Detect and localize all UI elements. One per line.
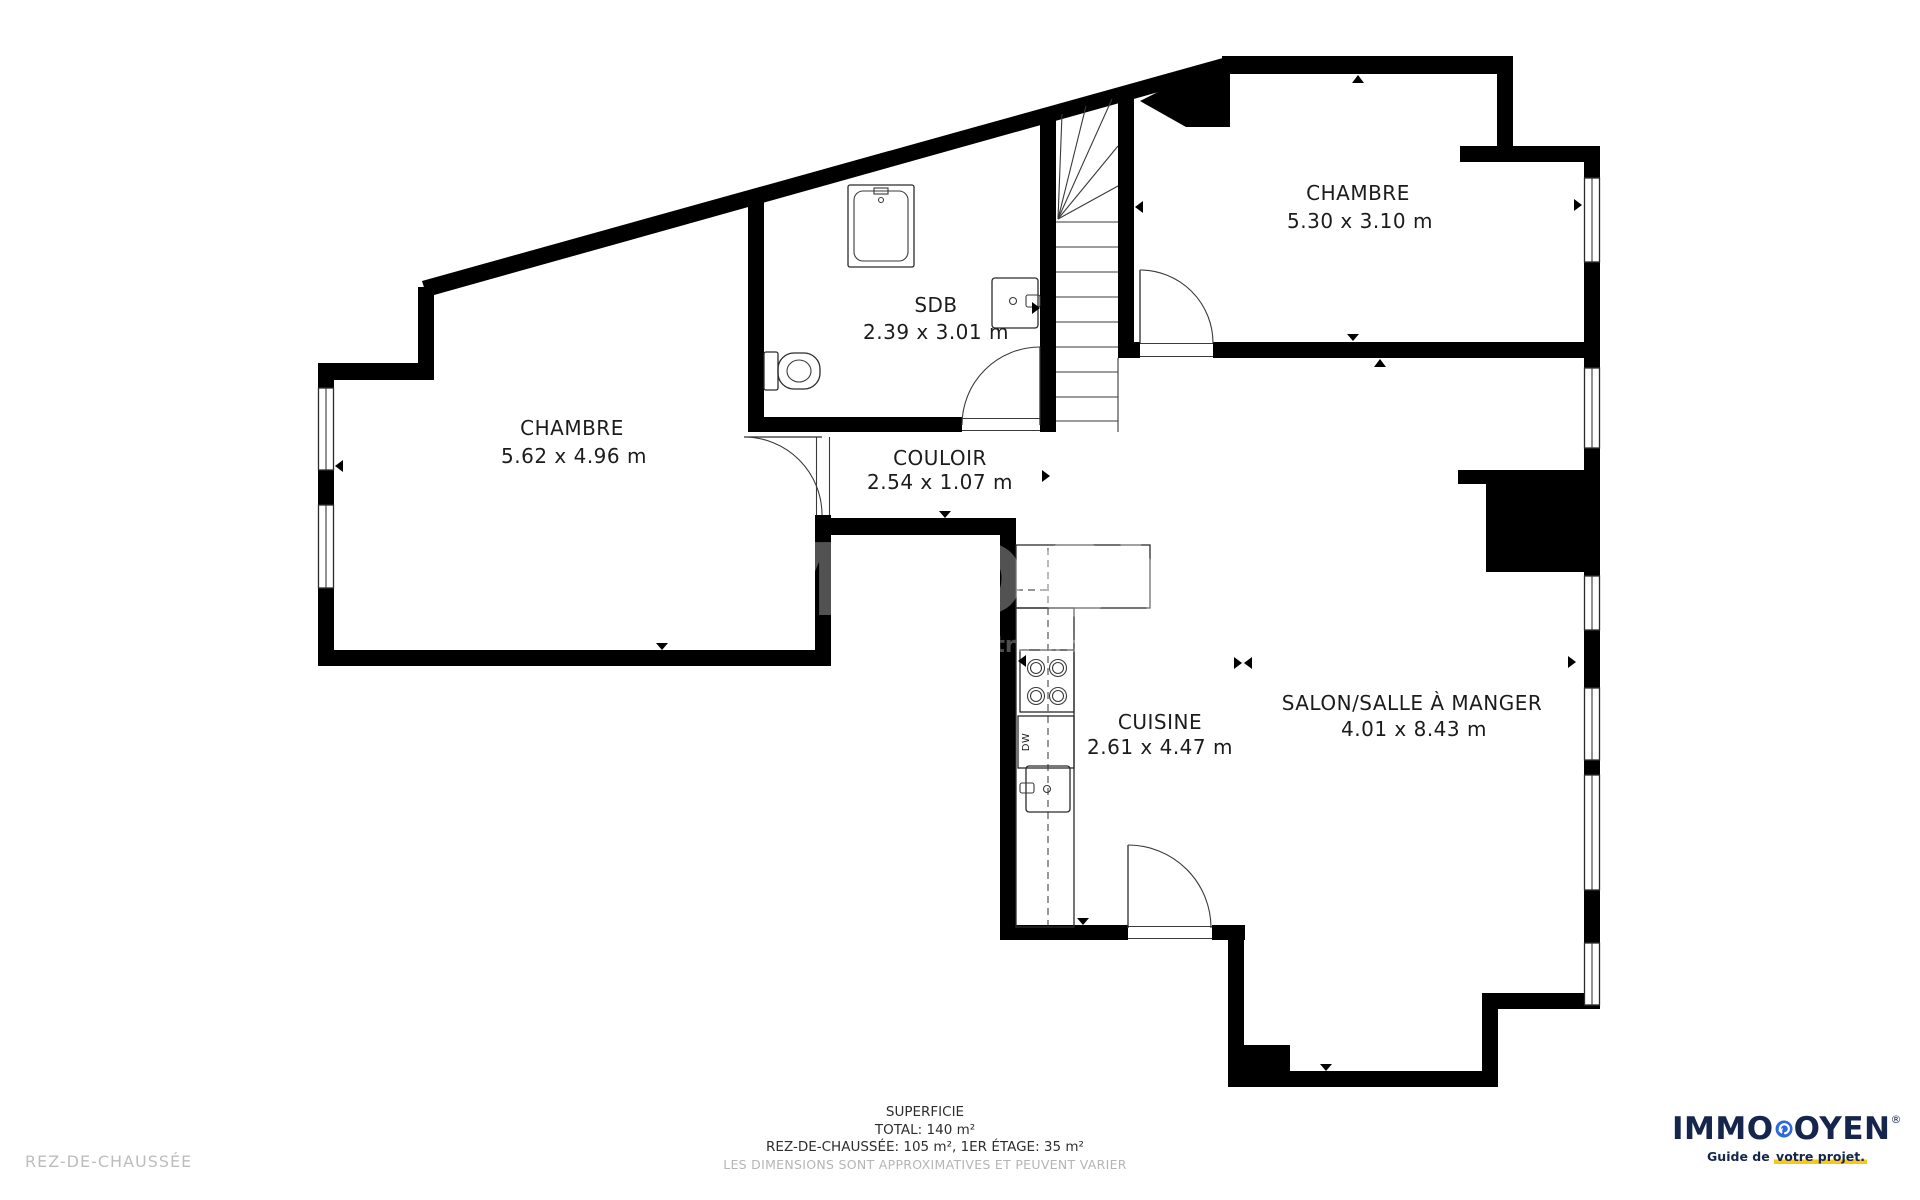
- watermark-tagline: Guide de votre projet: [847, 633, 1113, 658]
- window: [1585, 688, 1600, 760]
- wall: [1584, 630, 1600, 688]
- chimney-block: [1486, 470, 1598, 572]
- window: [1585, 943, 1600, 1005]
- wall: [318, 363, 434, 380]
- wall: [1482, 993, 1600, 1009]
- wall: [1584, 162, 1600, 178]
- dimension-marker: [1234, 657, 1242, 669]
- door-arc: [962, 347, 1040, 425]
- room-dims-couloir: 2.54 x 1.07 m: [867, 470, 1013, 494]
- dimension-marker: [1135, 201, 1143, 213]
- wall: [1232, 1045, 1290, 1071]
- room-dims-chambre-left: 5.62 x 4.96 m: [501, 444, 647, 468]
- logo-tagline-prefix: Guide de: [1707, 1149, 1774, 1164]
- wall: [1584, 890, 1600, 943]
- window: [1585, 178, 1600, 262]
- footer-area-summary: SUPERFICIE TOTAL: 140 m² REZ-DE-CHAUSSÉE…: [723, 1104, 1127, 1173]
- room-dims-chambre-right: 5.30 x 3.10 m: [1287, 209, 1433, 233]
- wall: [318, 650, 831, 666]
- superficie-breakdown: REZ-DE-CHAUSSÉE: 105 m², 1ER ÉTAGE: 35 m…: [723, 1139, 1127, 1157]
- room-dims-sdb: 2.39 x 3.01 m: [863, 320, 1009, 344]
- watermark-title: IMMODOYEN: [598, 522, 1362, 639]
- dimension-marker: [1077, 918, 1089, 925]
- window: [319, 505, 334, 588]
- wall: [418, 287, 434, 380]
- wall: [748, 417, 962, 432]
- dimension-marker: [335, 460, 343, 472]
- window: [1585, 775, 1600, 890]
- wall: [422, 56, 1230, 297]
- toilet-fixture: [764, 352, 820, 390]
- dishwasher-label: DW: [1021, 733, 1032, 752]
- room-label-salon: SALON/SALLE À MANGER: [1282, 691, 1543, 715]
- door-arc: [744, 437, 822, 515]
- stair-winder: [1058, 186, 1118, 219]
- logo-tagline: Guide de votre projet.: [1672, 1149, 1902, 1164]
- door-arc: [1128, 845, 1211, 928]
- dimension-marker: [1244, 657, 1252, 669]
- dimension-marker: [1042, 470, 1050, 482]
- wall: [1460, 146, 1600, 162]
- room-label-chambre-right: CHAMBRE: [1306, 181, 1410, 205]
- room-label-cuisine: CUISINE: [1118, 710, 1202, 734]
- registered-mark: ®: [1891, 1114, 1903, 1125]
- dimension-marker: [1320, 1064, 1332, 1071]
- superficie-title: SUPERFICIE: [723, 1104, 1127, 1122]
- door-arc: [1140, 270, 1213, 343]
- room-dims-salon: 4.01 x 8.43 m: [1341, 717, 1487, 741]
- watermark: IMMODOYEN Guide de votre projet: [598, 522, 1362, 658]
- wall: [1118, 91, 1134, 358]
- stove-fixture: [1020, 650, 1074, 712]
- dishwasher-fixture: DW: [1018, 716, 1074, 768]
- wall: [1228, 1071, 1497, 1087]
- wall: [1213, 342, 1600, 358]
- logo-d-icon: [1775, 1112, 1793, 1146]
- wall: [748, 195, 764, 432]
- room-label-chambre-left: CHAMBRE: [520, 416, 624, 440]
- superficie-total: TOTAL: 140 m²: [723, 1122, 1127, 1140]
- wall: [1584, 760, 1600, 775]
- kitchen-sink-fixture: [1020, 766, 1070, 812]
- logo-text-oyen: OYEN: [1794, 1114, 1891, 1145]
- logo-tagline-highlight: votre projet.: [1774, 1149, 1867, 1164]
- dimension-marker: [1347, 334, 1359, 341]
- wall: [1040, 112, 1056, 432]
- dimension-marker: [1568, 656, 1576, 668]
- room-labels: CHAMBRE 5.30 x 3.10 m SDB 2.39 x 3.01 m …: [501, 181, 1542, 759]
- dimension-marker: [1374, 359, 1386, 367]
- dimension-marker: [656, 643, 668, 650]
- room-label-couloir: COULOIR: [893, 446, 987, 470]
- logo-text-immo: IMMO: [1672, 1114, 1774, 1145]
- brand-logo: IMMO OYEN ® Guide de votre projet.: [1672, 1112, 1902, 1164]
- dimensions-disclaimer: LES DIMENSIONS SONT APPROXIMATIVES ET PE…: [723, 1157, 1127, 1173]
- wall: [1222, 56, 1513, 74]
- floorplan-page: DW IMMODOYEN Guide de votre projet CHAMB…: [0, 0, 1920, 1200]
- floor-plan-svg: DW IMMODOYEN Guide de votre projet CHAMB…: [0, 0, 1920, 1200]
- wall: [1040, 417, 1056, 432]
- window: [1585, 368, 1600, 448]
- room-label-sdb: SDB: [914, 293, 957, 317]
- room-dims-cuisine: 2.61 x 4.47 m: [1087, 735, 1233, 759]
- staircase: [1056, 99, 1118, 432]
- window: [1585, 576, 1600, 630]
- shower-fixture: [848, 185, 914, 267]
- dimension-marker: [1032, 302, 1040, 314]
- dimension-marker: [1352, 75, 1364, 83]
- window: [319, 388, 334, 470]
- dimension-marker: [939, 511, 951, 518]
- floor-label: REZ-DE-CHAUSSÉE: [25, 1152, 192, 1171]
- wall: [318, 470, 334, 505]
- dimension-marker: [1574, 199, 1582, 211]
